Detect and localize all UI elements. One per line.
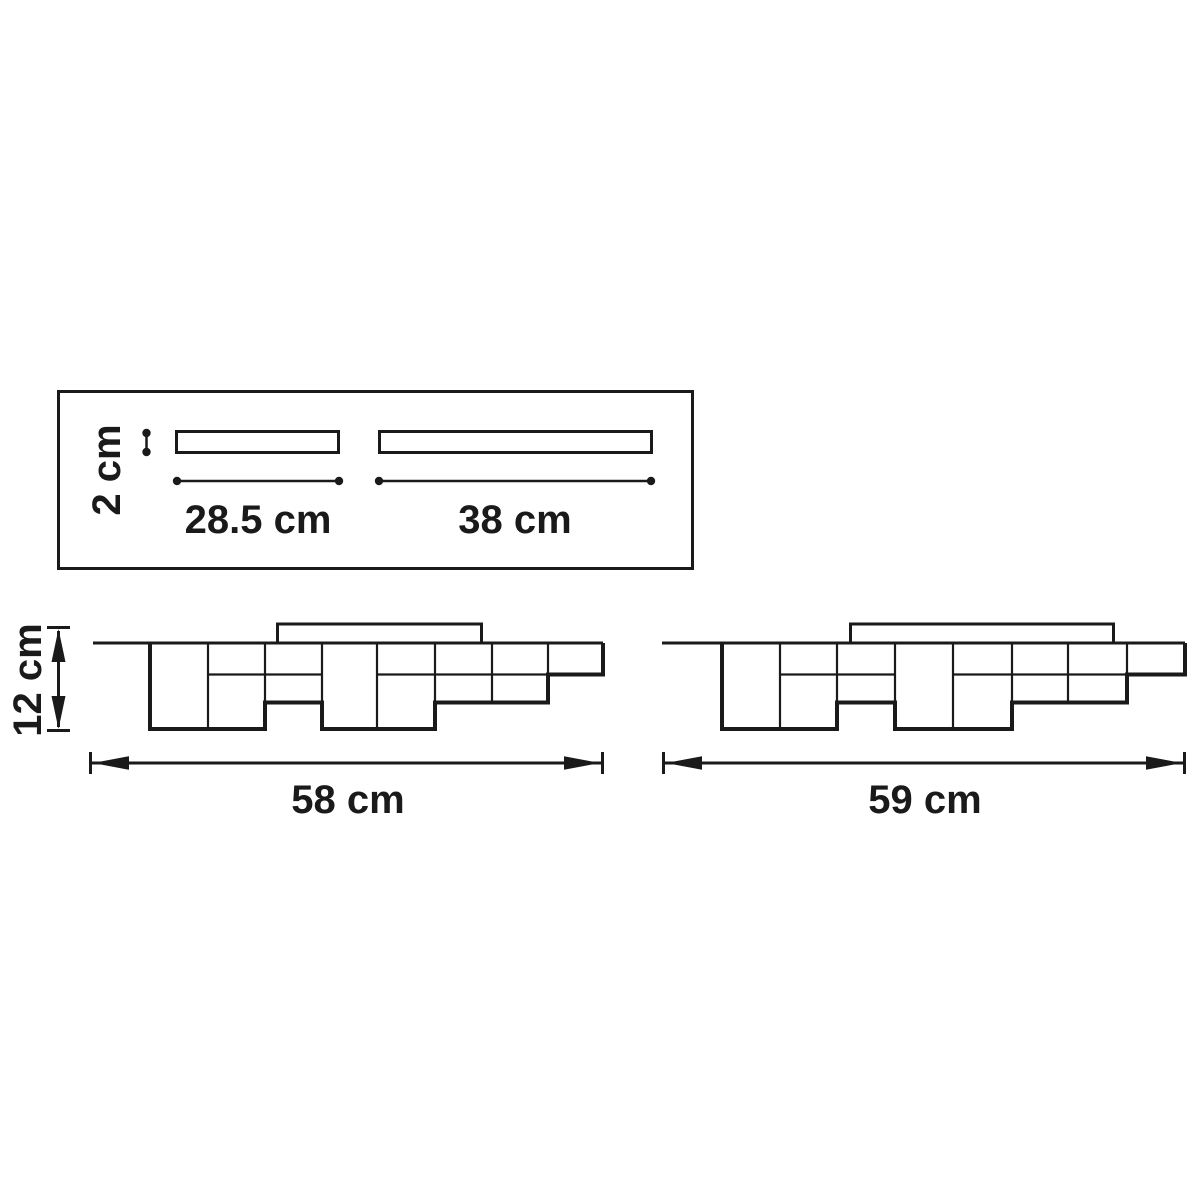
right-side-view: [662, 624, 1185, 729]
left-width-arrow-left: [93, 756, 129, 770]
bar-thickness-dimension: 2 cm: [85, 424, 151, 515]
short-bar-length-label: 28.5 cm: [185, 498, 332, 542]
right-width-arrow-left: [666, 756, 702, 770]
short-mounting-bar: [177, 432, 339, 453]
mount-plate-right: [851, 624, 1114, 643]
top-view: 2 cm 28.5 cm 38 cm: [59, 392, 693, 569]
right-width-arrow-right: [1146, 756, 1182, 770]
thickness-dim-dot-top: [142, 429, 150, 437]
height-dimension: 12 cm: [6, 623, 70, 736]
cube-dividers-right: [780, 643, 1127, 729]
bar-thickness-label: 2 cm: [85, 424, 129, 515]
thickness-dim-dot-bottom: [142, 448, 150, 456]
height-label: 12 cm: [6, 623, 50, 736]
left-width-dimension: 58 cm: [91, 752, 603, 822]
technical-drawing: 2 cm 28.5 cm 38 cm: [0, 0, 1200, 1200]
left-width-label: 58 cm: [291, 778, 404, 822]
cube-dividers-left: [208, 643, 548, 729]
height-dim-arrow-up: [52, 629, 66, 662]
left-side-view: [93, 624, 603, 729]
long-bar-length-label: 38 cm: [458, 498, 571, 542]
long-mounting-bar: [380, 432, 652, 453]
short-bar-dimension: 28.5 cm: [173, 477, 343, 542]
short-bar-dim-dot-right: [335, 477, 343, 485]
long-bar-dim-dot-right: [647, 477, 655, 485]
height-dim-arrow-down: [52, 696, 66, 729]
long-bar-dim-dot-left: [375, 477, 383, 485]
drawing-svg: 2 cm 28.5 cm 38 cm: [0, 0, 1200, 1200]
mount-plate-left: [278, 624, 482, 643]
right-width-dimension: 59 cm: [664, 752, 1185, 822]
short-bar-dim-dot-left: [173, 477, 181, 485]
left-width-arrow-right: [564, 756, 600, 770]
right-width-label: 59 cm: [868, 778, 981, 822]
long-bar-dimension: 38 cm: [375, 477, 655, 542]
